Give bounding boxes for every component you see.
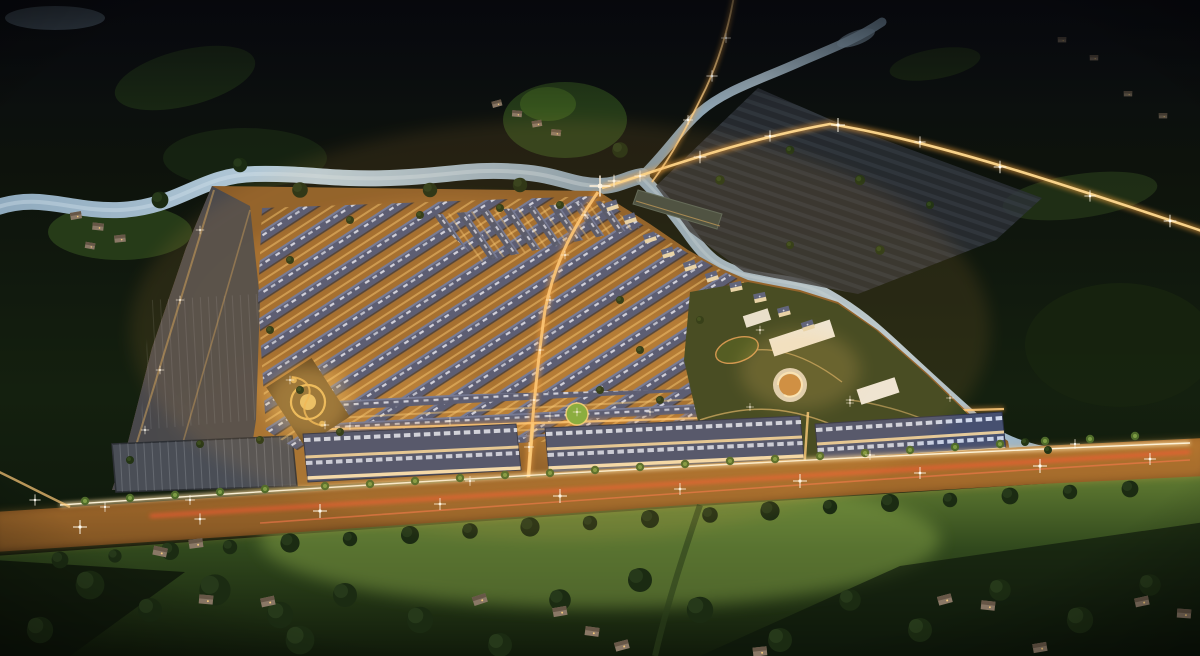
render-canvas: [0, 0, 1200, 656]
vignette: [0, 0, 1200, 656]
aerial-night-render: [0, 0, 1200, 656]
